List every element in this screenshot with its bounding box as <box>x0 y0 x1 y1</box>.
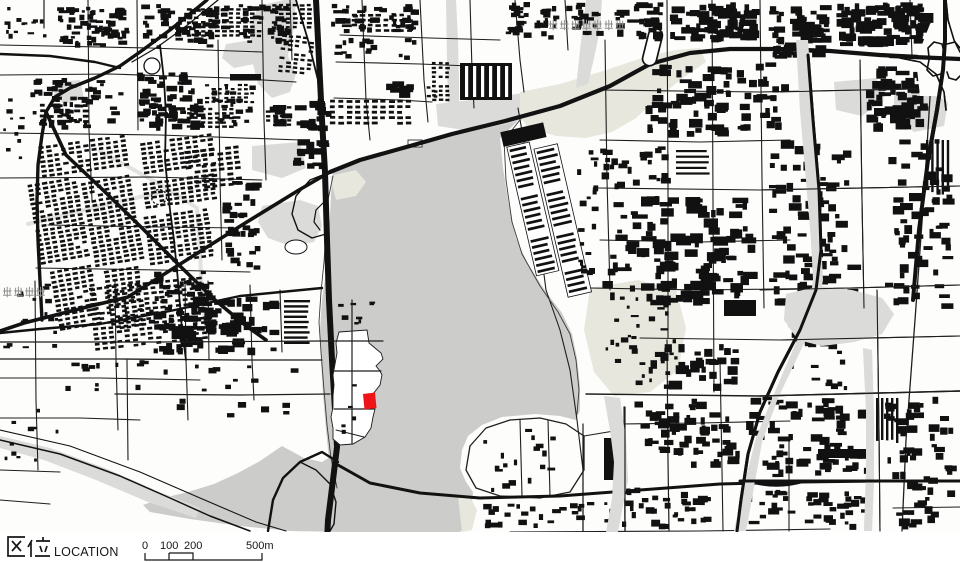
svg-text:LOCATION: LOCATION <box>54 545 119 559</box>
svg-text:0: 0 <box>142 540 148 552</box>
svg-text:100: 100 <box>160 540 178 552</box>
svg-text:200: 200 <box>184 540 202 552</box>
svg-text:500m: 500m <box>246 540 274 552</box>
